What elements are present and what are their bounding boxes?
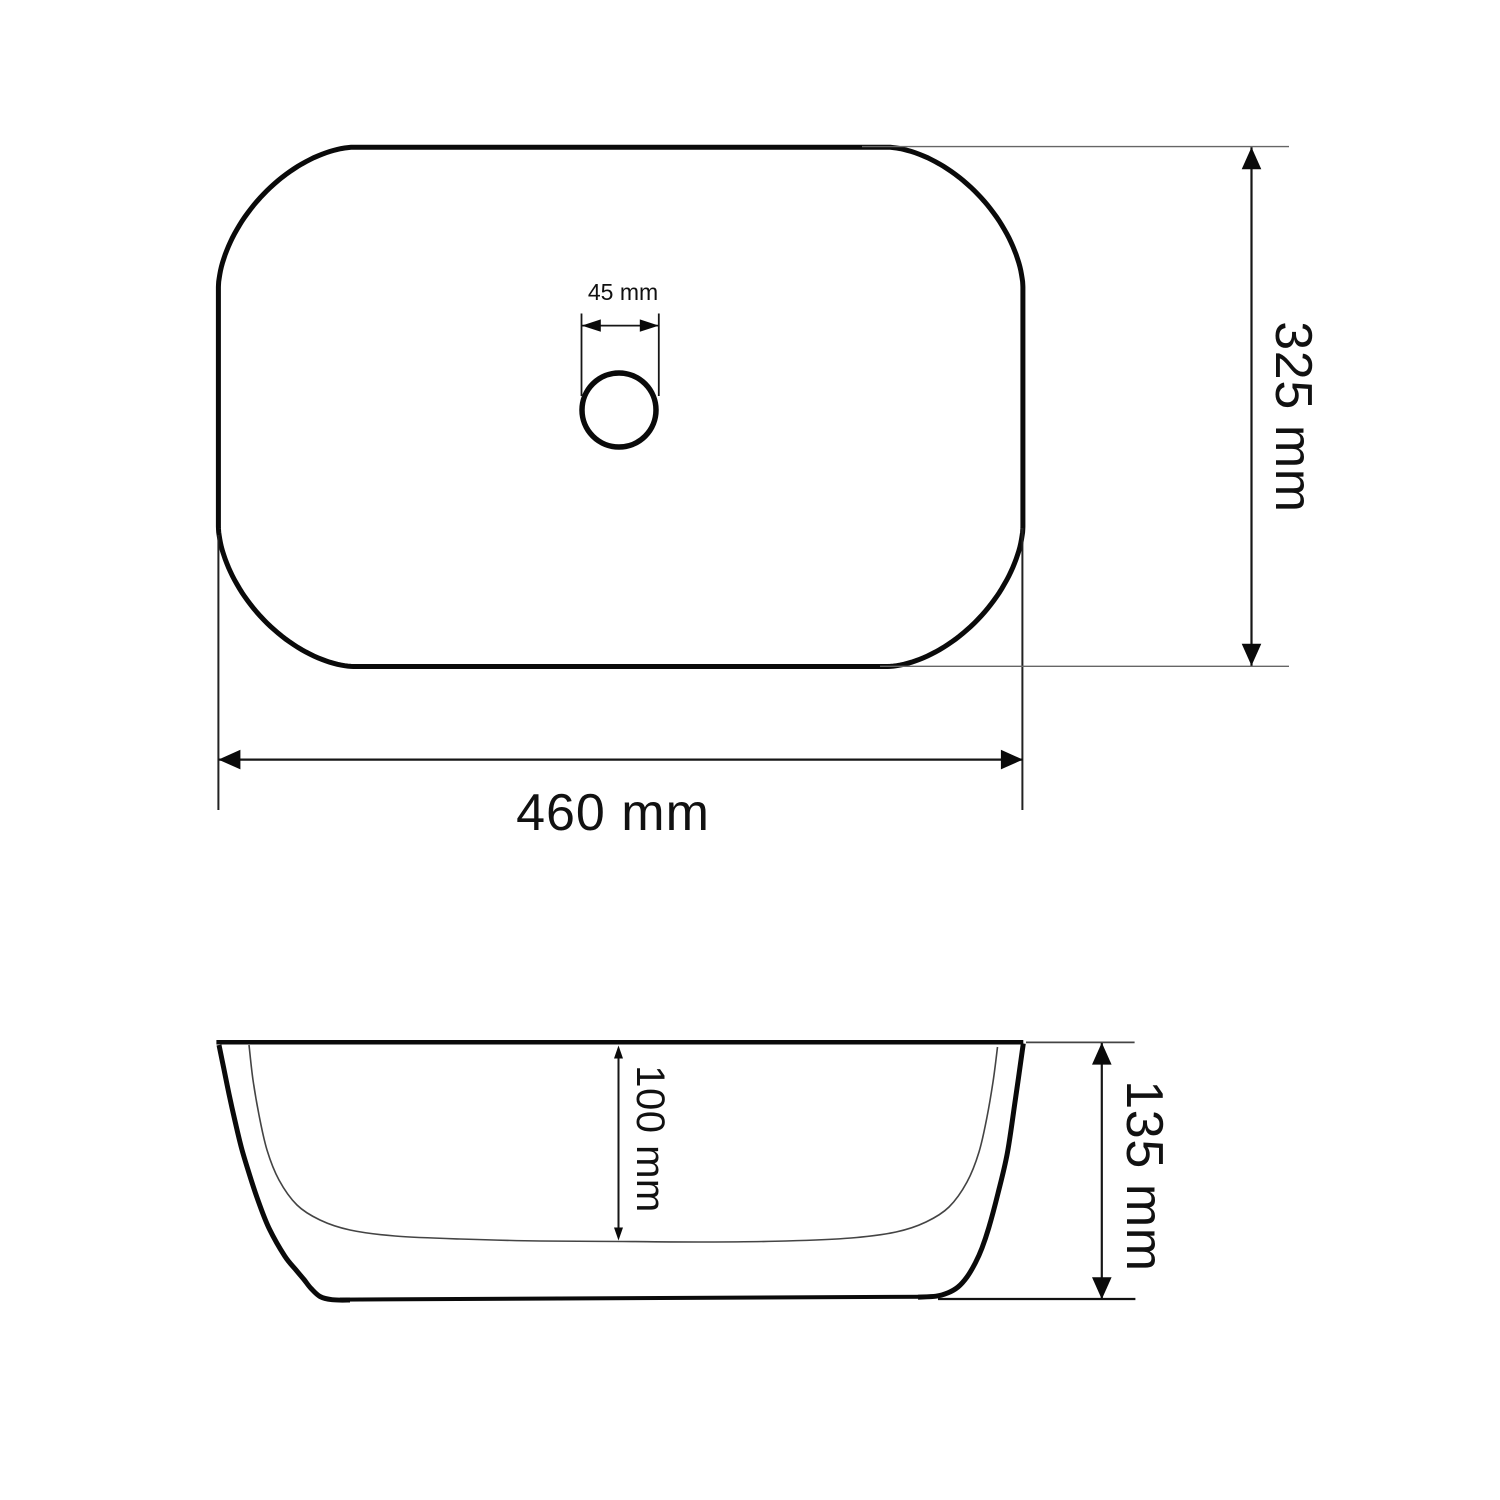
svg-text:460 mm: 460 mm <box>516 784 710 842</box>
svg-text:325 mm: 325 mm <box>1264 321 1322 512</box>
svg-text:100 mm: 100 mm <box>628 1065 672 1213</box>
svg-text:45 mm: 45 mm <box>588 279 658 305</box>
svg-text:135 mm: 135 mm <box>1115 1080 1173 1271</box>
